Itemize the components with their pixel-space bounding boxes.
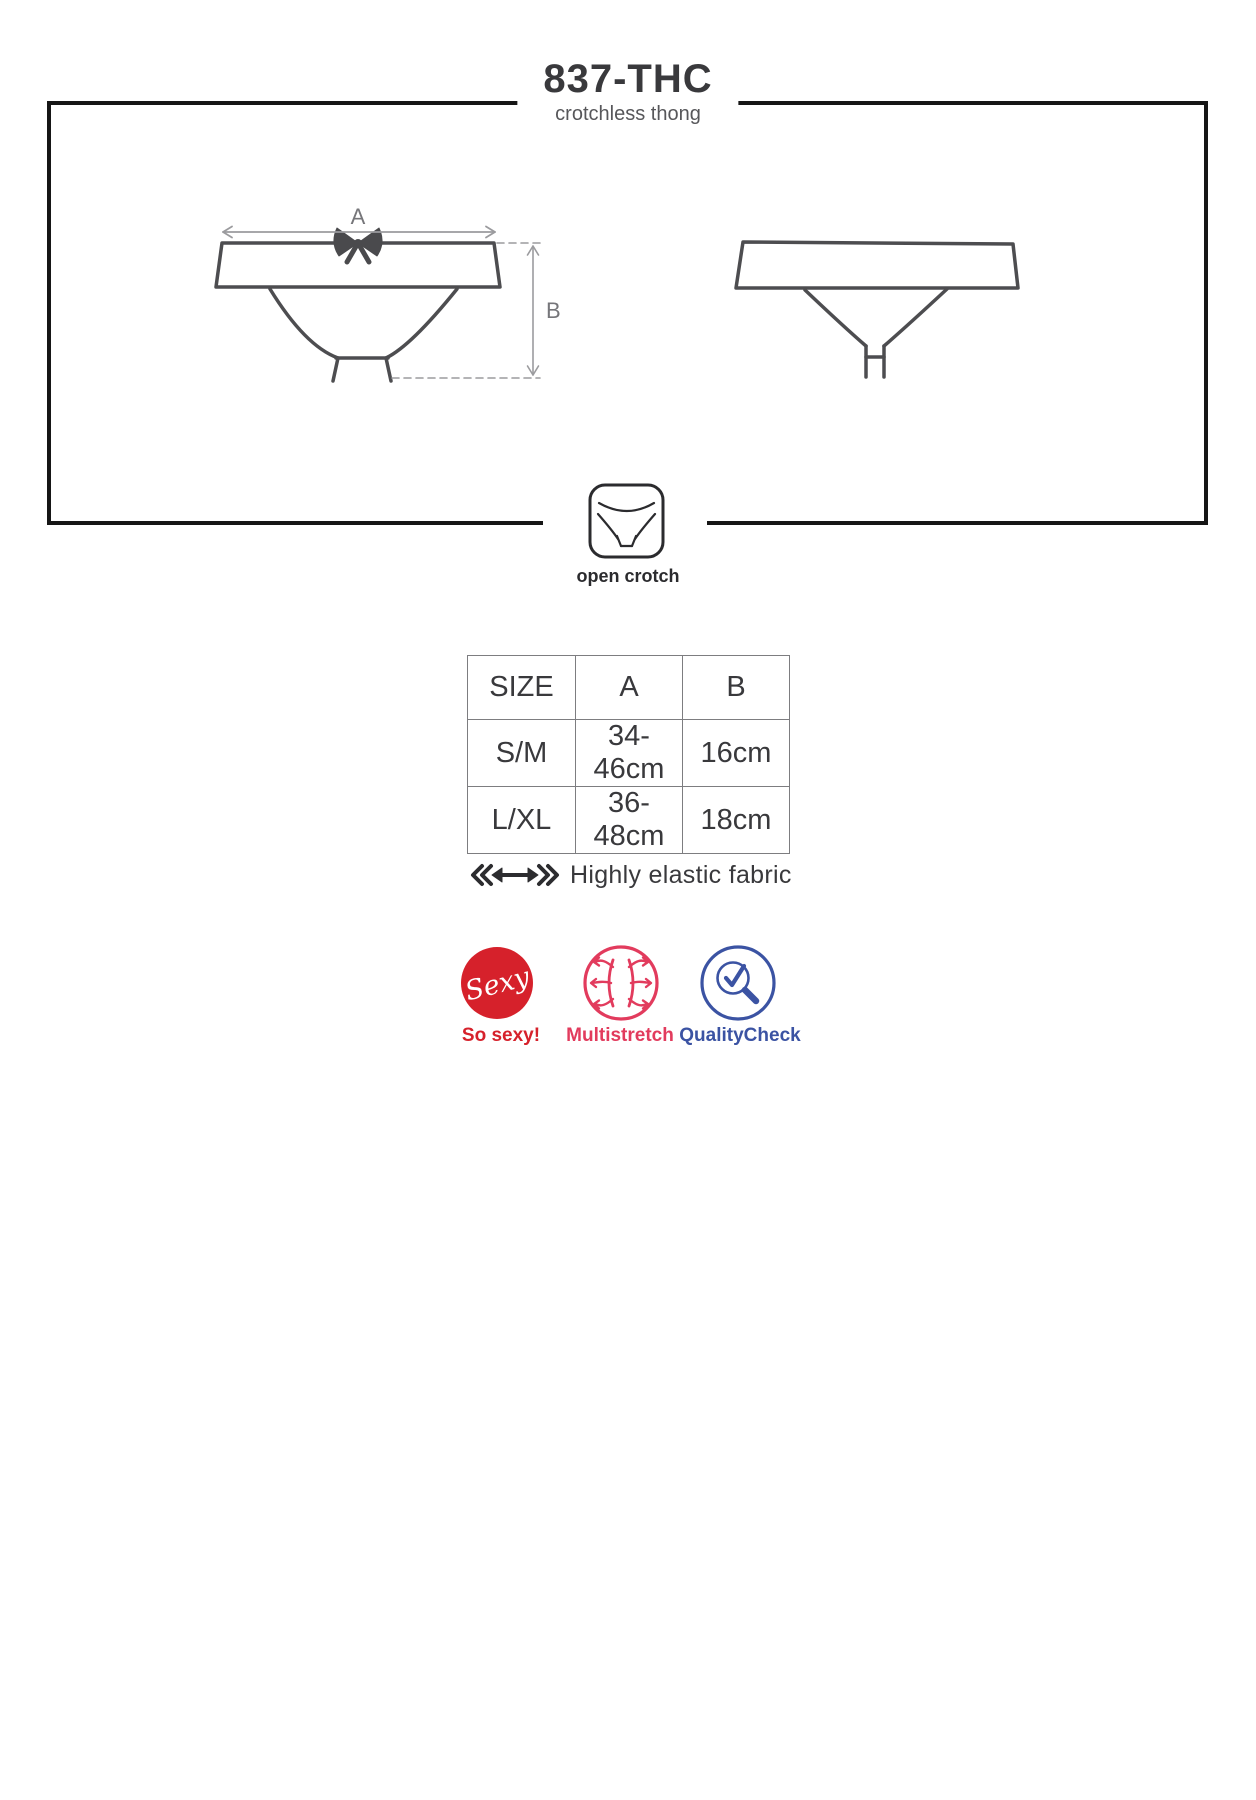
open-crotch-icon: [543, 485, 707, 557]
cell-size-sm: S/M: [468, 720, 576, 787]
size-table-row-lxl: L/XL 36-48cm 18cm: [468, 787, 790, 854]
badge-label-multistretch: Multistretch: [566, 1025, 674, 1047]
spec-sheet-page: 837-THC crotchless thong A: [0, 0, 1256, 1800]
badge-label-so-sexy: So sexy!: [462, 1025, 540, 1047]
open-crotch-label: open crotch: [576, 566, 679, 587]
title-block: 837-THC crotchless thong: [517, 57, 738, 126]
cell-b-sm: 16cm: [683, 720, 790, 787]
front-view-drawing: [216, 243, 500, 381]
garment-diagram-svg: A B: [0, 0, 1256, 1100]
fabric-note-text: Highly elastic fabric: [570, 861, 792, 890]
size-table-header-size: SIZE: [468, 656, 576, 720]
page-subtitle: crotchless thong: [543, 103, 712, 126]
dimension-b-label: B: [546, 298, 561, 323]
cell-a-sm: 34-46cm: [576, 720, 683, 787]
multistretch-icon: [585, 947, 657, 1019]
size-table-header-row: SIZE A B: [468, 656, 790, 720]
elastic-fabric-icon: [473, 866, 557, 884]
back-view-drawing: [736, 242, 1018, 377]
size-table-header-b: B: [683, 656, 790, 720]
dimension-a-label: A: [351, 204, 366, 229]
cell-a-lxl: 36-48cm: [576, 787, 683, 854]
size-table-header-a: A: [576, 656, 683, 720]
sexy-badge-icon: Sexy: [461, 947, 533, 1019]
cell-b-lxl: 18cm: [683, 787, 790, 854]
size-table: SIZE A B S/M 34-46cm 16cm L/XL 36-48cm 1…: [467, 655, 790, 854]
size-table-row-sm: S/M 34-46cm 16cm: [468, 720, 790, 787]
quality-check-icon: [702, 947, 774, 1019]
page-title: 837-THC: [543, 57, 712, 101]
badge-label-quality-check: QualityCheck: [679, 1025, 800, 1047]
cell-size-lxl: L/XL: [468, 787, 576, 854]
